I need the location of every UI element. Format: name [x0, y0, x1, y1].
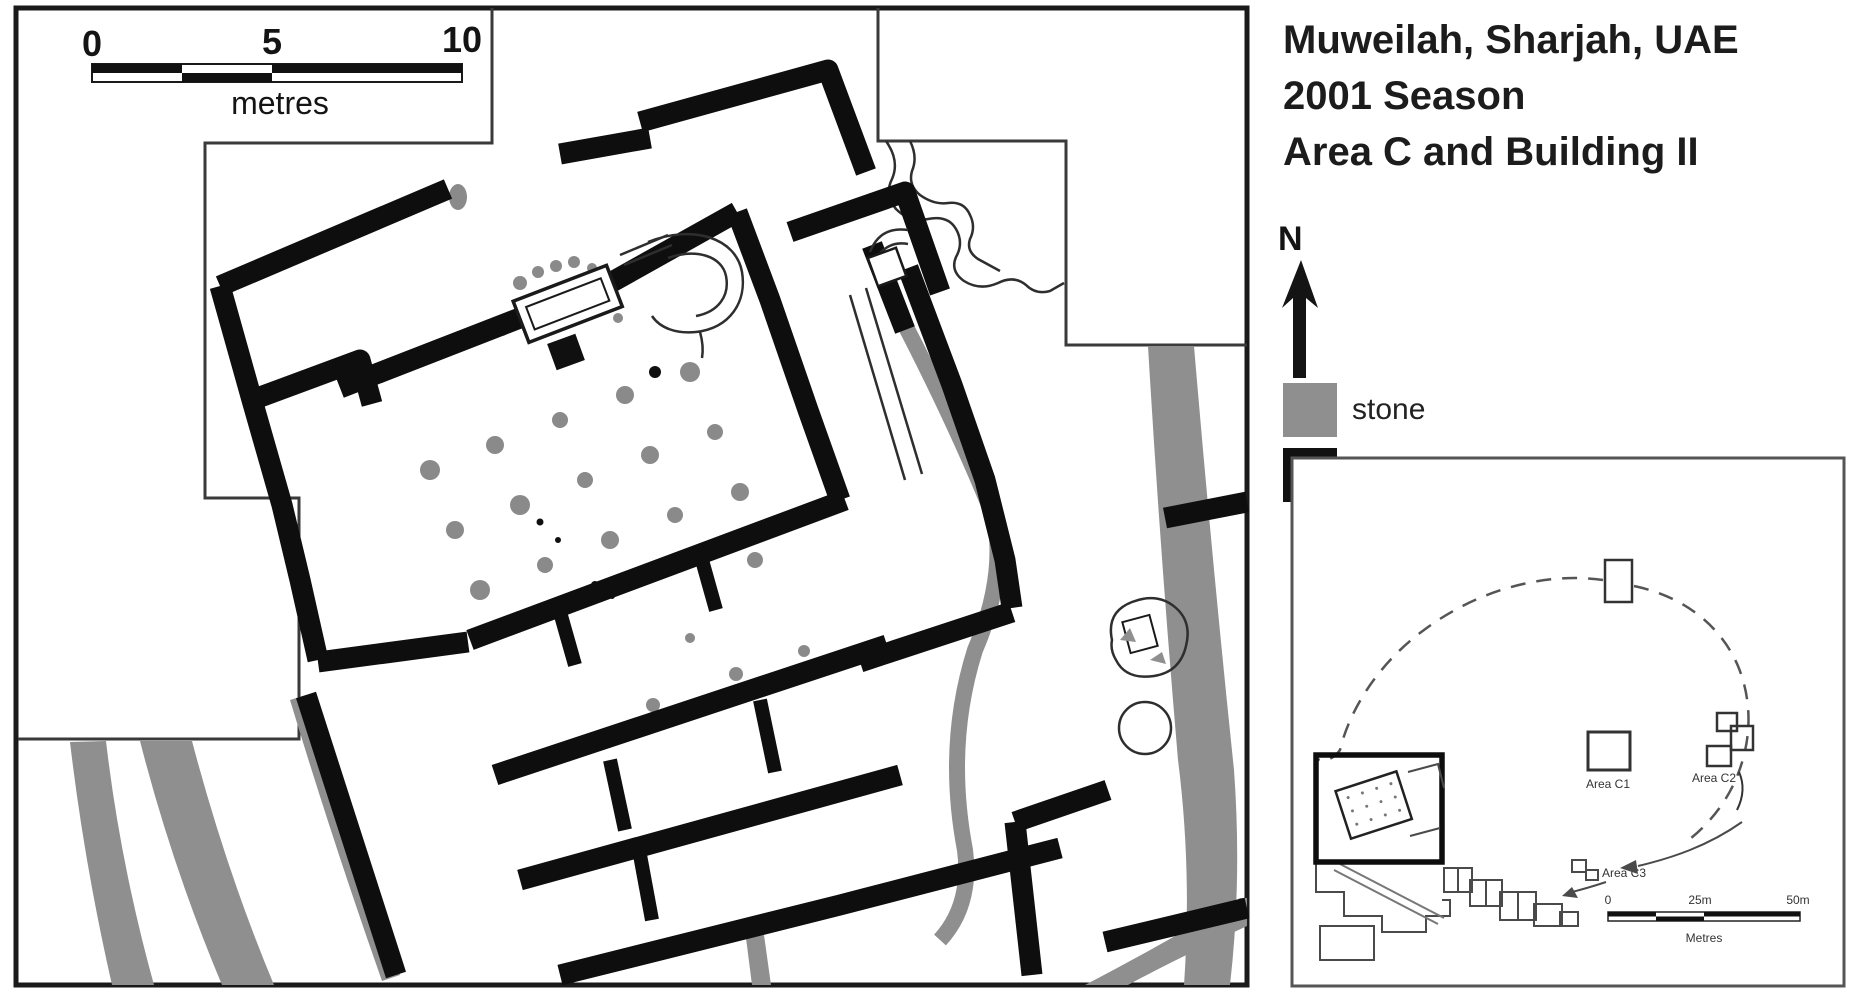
stone-swatch-icon: [1283, 383, 1337, 437]
north-label: N: [1278, 222, 1324, 256]
area-c1-label: Area C1: [1586, 777, 1630, 791]
title-line-1: Muweilah, Sharjah, UAE: [1283, 12, 1739, 68]
altar-feature: [513, 265, 622, 342]
inset-tick-25: 25m: [1688, 893, 1711, 907]
main-plan: 0 5 10 metres: [0, 0, 1250, 999]
title-block: Muweilah, Sharjah, UAE 2001 Season Area …: [1283, 12, 1739, 180]
inset-frame: [1292, 458, 1844, 986]
pise-walls: [220, 70, 1247, 975]
inset-scale-unit: Metres: [1686, 931, 1723, 945]
inset-map-svg: Area C1 Area C2 Area C3: [1290, 456, 1848, 989]
figure-canvas: 0 5 10 metres Muweilah, Sharjah, UAE 200…: [0, 0, 1859, 999]
scale-tick-0: 0: [82, 23, 102, 64]
inset-tick-0: 0: [1605, 893, 1612, 907]
stone-blob: [449, 184, 467, 210]
north-arrow-icon: [1278, 256, 1324, 380]
circle-feature: [1119, 702, 1171, 754]
title-line-3: Area C and Building II: [1283, 124, 1739, 180]
legend-label-stone: stone: [1352, 393, 1425, 427]
trench-top: [1605, 560, 1632, 602]
hearth-square: [547, 334, 585, 371]
scale-tick-10: 10: [442, 19, 482, 60]
excavation-boundary-topright: [878, 8, 1247, 345]
stone-band-sw-2: [140, 741, 274, 985]
north-indicator: N: [1278, 222, 1324, 380]
scale-tick-5: 5: [262, 21, 282, 62]
stone-stub: [746, 935, 771, 985]
area-c2-label: Area C2: [1692, 771, 1736, 785]
title-line-2: 2001 Season: [1283, 68, 1739, 124]
stone-features: [70, 184, 1247, 985]
stone-band-sw-1: [70, 741, 154, 985]
inset-tick-50: 50m: [1786, 893, 1809, 907]
scale-unit: metres: [231, 85, 329, 121]
stone-band-right: [1148, 346, 1237, 985]
scale-bar: 0 5 10 metres: [82, 19, 482, 121]
inset-map: Area C1 Area C2 Area C3: [1290, 456, 1848, 989]
main-plan-svg: 0 5 10 metres: [0, 0, 1250, 999]
legend-item-stone: stone: [1283, 383, 1425, 437]
